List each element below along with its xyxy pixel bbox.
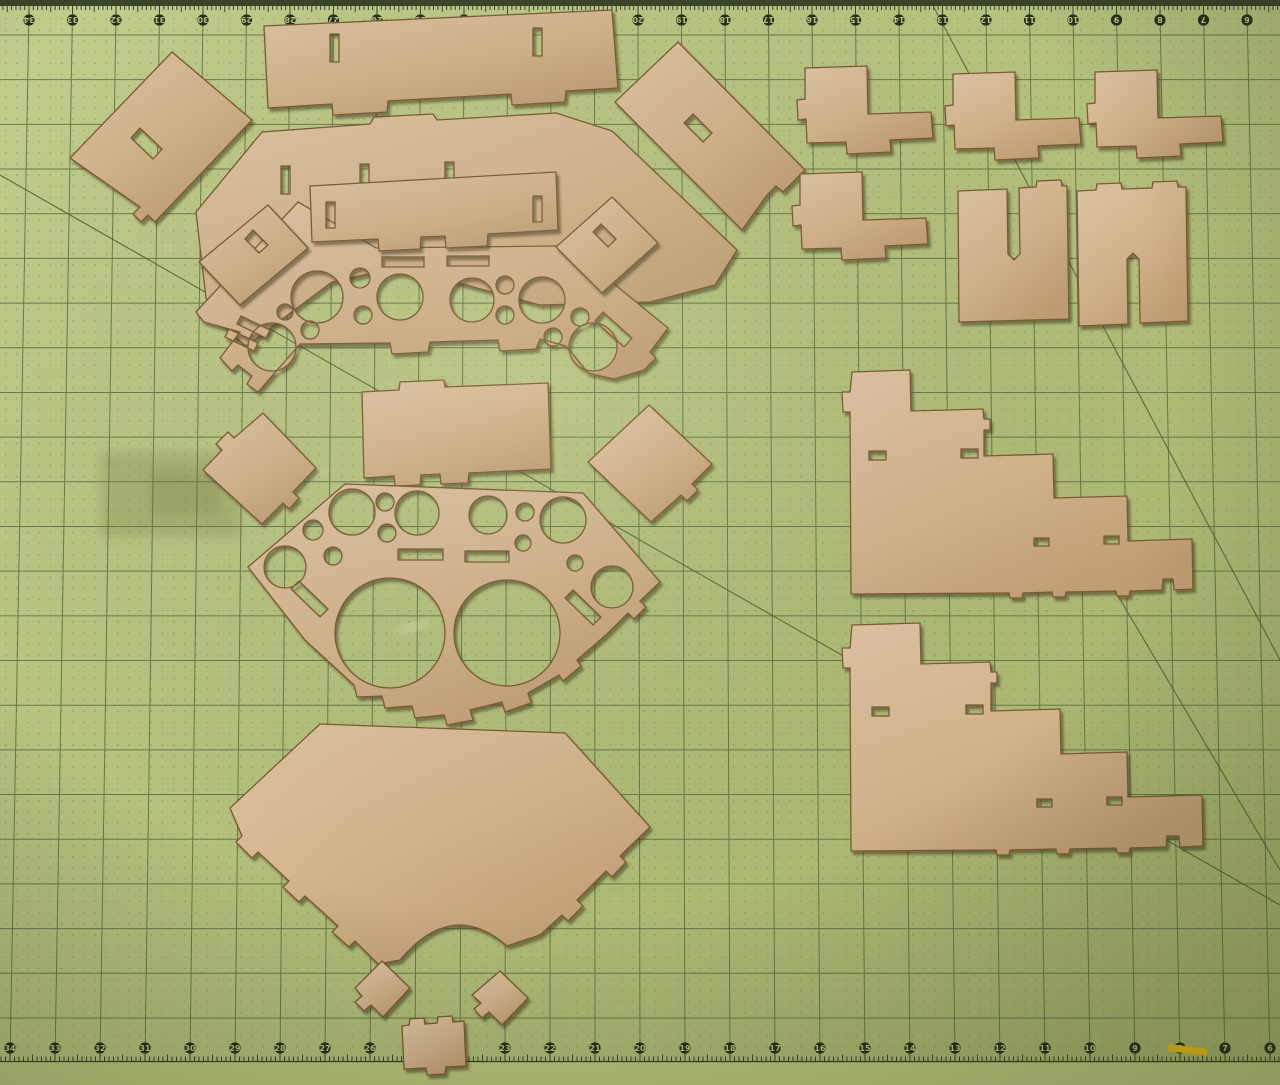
top-ruler-number-group: 34 [23, 14, 35, 25]
top-ruler-number-group: 15 [850, 14, 862, 25]
bottom-ruler-number-group: 10 [1084, 1042, 1096, 1053]
bottom-ruler-number-group: 21 [589, 1042, 601, 1053]
top-ruler-number-label: 30 [197, 15, 209, 24]
top-ruler-number-label: 32 [110, 15, 121, 24]
top-ruler-number-group: 20 [632, 14, 644, 25]
bottom-ruler-number-group: 34 [4, 1042, 16, 1053]
bottom-ruler-number-group: 29 [229, 1042, 241, 1053]
bottom-ruler-number-label: 23 [499, 1044, 510, 1053]
bottom-ruler-number-group: 16 [814, 1042, 826, 1053]
top-ruler-number-group: 19 [676, 14, 688, 25]
top-ruler-number-group: 31 [154, 14, 166, 25]
top-ruler-number-label: 17 [763, 15, 774, 24]
scene-svg: 3433323130292827262524232221201918171615… [0, 0, 1280, 1085]
bottom-ruler-number-label: 20 [634, 1044, 646, 1053]
bottom-ruler-number-group: 31 [139, 1042, 151, 1053]
piece-bottom-tabbed-rect [402, 1016, 466, 1075]
bottom-ruler-number-group: 11 [1039, 1042, 1051, 1053]
top-ruler-number-label: 12 [980, 15, 991, 24]
bottom-ruler-number-group: 7 [1219, 1042, 1230, 1053]
bottom-ruler-number-label: 15 [859, 1044, 871, 1053]
top-ruler-number-label: 19 [676, 15, 688, 24]
bottom-ruler-number-label: 18 [724, 1044, 736, 1053]
top-ruler-number-group: 14 [893, 14, 905, 25]
bottom-ruler-number-label: 12 [994, 1044, 1005, 1053]
bottom-ruler-number-label: 11 [1039, 1044, 1051, 1053]
top-ruler-number-label: 33 [67, 15, 78, 24]
top-ruler-number-label: 7 [1201, 15, 1207, 24]
bottom-ruler-number-group: 26 [364, 1042, 376, 1053]
top-ruler-number-label: 6 [1244, 15, 1250, 24]
top-ruler-number-label: 14 [893, 15, 905, 24]
bottom-ruler-number-group: 28 [274, 1042, 286, 1053]
bottom-ruler-number-group: 17 [769, 1042, 780, 1053]
bottom-ruler-number-label: 9 [1132, 1044, 1138, 1053]
bottom-ruler-number-label: 31 [139, 1044, 151, 1053]
top-ruler-number-group: 33 [67, 14, 78, 25]
bottom-ruler-number-label: 29 [229, 1044, 241, 1053]
bottom-ruler-number-label: 16 [814, 1044, 826, 1053]
bottom-ruler-number-group: 20 [634, 1042, 646, 1053]
top-ruler-number-group: 13 [937, 14, 948, 25]
bottom-ruler-number-group: 18 [724, 1042, 736, 1053]
top-ruler-number-group: 30 [197, 14, 209, 25]
bottom-ruler-number-group: 6 [1264, 1042, 1275, 1053]
top-ruler-number-label: 29 [241, 15, 253, 24]
bottom-ruler-number-group: 27 [319, 1042, 330, 1053]
top-ruler-number-group: 12 [980, 14, 991, 25]
top-ruler-number-label: 9 [1113, 15, 1119, 24]
top-ruler-number-label: 31 [154, 15, 166, 24]
top-ruler-number-label: 8 [1157, 15, 1163, 24]
bottom-ruler-number-group: 22 [544, 1042, 555, 1053]
bottom-ruler-number-group: 30 [184, 1042, 196, 1053]
bottom-ruler-number-label: 6 [1267, 1044, 1273, 1053]
bottom-ruler-number-label: 34 [4, 1044, 16, 1053]
bottom-ruler-number-label: 14 [904, 1044, 916, 1053]
top-ruler-number-label: 13 [937, 15, 948, 24]
bottom-ruler-number-label: 27 [319, 1044, 330, 1053]
piece-mid-rectangle [362, 380, 551, 486]
top-ruler-band [0, 0, 1280, 6]
bottom-ruler-number-label: 10 [1084, 1044, 1096, 1053]
top-ruler-number-group: 32 [110, 14, 121, 25]
top-ruler-number-group: 29 [241, 14, 253, 25]
top-ruler-number-label: 15 [850, 15, 862, 24]
bottom-ruler-number-group: 13 [949, 1042, 960, 1053]
top-ruler-number-group: 16 [806, 14, 818, 25]
top-ruler-number-label: 20 [632, 15, 644, 24]
top-ruler-number-label: 34 [23, 15, 35, 24]
bottom-ruler-number-group: 33 [49, 1042, 60, 1053]
bottom-ruler-number-group: 9 [1129, 1042, 1140, 1053]
top-ruler-number-label: 28 [284, 15, 296, 24]
top-ruler-number-group: 28 [284, 14, 296, 25]
bottom-ruler-number-label: 21 [589, 1044, 601, 1053]
top-ruler-number-label: 16 [806, 15, 818, 24]
bottom-ruler-number-label: 13 [949, 1044, 960, 1053]
photo-laser-cut-parts-on-cutting-mat: 3433323130292827262524232221201918171615… [0, 0, 1280, 1085]
top-ruler-number-group: 6 [1241, 14, 1252, 25]
bottom-ruler-number-label: 32 [94, 1044, 105, 1053]
top-ruler-number-label: 11 [1024, 15, 1036, 24]
top-ruler-number-group: 8 [1154, 14, 1165, 25]
bottom-ruler-number-label: 7 [1222, 1044, 1228, 1053]
bottom-ruler-number-label: 28 [274, 1044, 286, 1053]
top-ruler-number-group: 9 [1111, 14, 1122, 25]
bottom-ruler-number-label: 26 [364, 1044, 376, 1053]
bottom-ruler-number-group: 15 [859, 1042, 871, 1053]
bottom-ruler-number-label: 33 [49, 1044, 60, 1053]
top-ruler-number-group: 17 [763, 14, 774, 25]
bottom-ruler-number-group: 23 [499, 1042, 510, 1053]
top-ruler-number-group: 18 [719, 14, 731, 25]
top-ruler-number-group: 7 [1198, 14, 1209, 25]
bottom-ruler-number-group: 19 [679, 1042, 691, 1053]
top-ruler-number-label: 18 [719, 15, 731, 24]
bottom-ruler-number-group: 12 [994, 1042, 1005, 1053]
bottom-mat-edge-strip [0, 1063, 1280, 1085]
bottom-ruler-number-label: 17 [769, 1044, 780, 1053]
bottom-ruler-number-label: 19 [679, 1044, 691, 1053]
bottom-ruler-number-group: 14 [904, 1042, 916, 1053]
top-ruler-number-group: 10 [1067, 14, 1079, 25]
bottom-ruler-number-label: 30 [184, 1044, 196, 1053]
bottom-ruler-number-label: 22 [544, 1044, 555, 1053]
top-ruler-number-group: 11 [1024, 14, 1036, 25]
bottom-ruler-number-group: 32 [94, 1042, 105, 1053]
top-ruler-number-label: 10 [1067, 15, 1079, 24]
